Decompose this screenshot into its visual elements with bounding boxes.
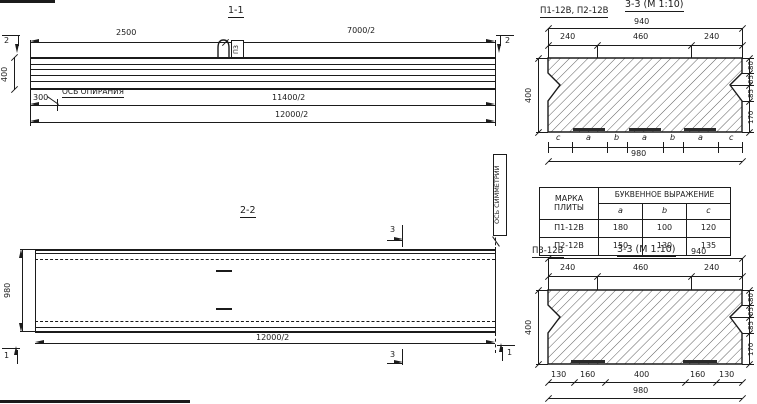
- detail-top-title: 3-3 (М 1:10): [625, 0, 684, 12]
- dim-12000-2: 12000/2: [256, 334, 289, 342]
- letter-a: a: [698, 134, 703, 142]
- dim-65: 65: [748, 306, 755, 317]
- section-1-1-title: 1-1: [228, 6, 244, 18]
- dim-160-right: 160: [690, 371, 705, 379]
- support-axis-label: ОСЬ ОПИРАНИЯ: [62, 88, 124, 98]
- dim-980: 980: [633, 387, 648, 395]
- detail-top-label: П1-12В, П2-12В: [540, 7, 608, 18]
- plan-right-edge: [495, 249, 496, 333]
- dim-240-right: 240: [704, 264, 719, 272]
- dim-line: [548, 45, 742, 46]
- dim-line: [548, 28, 742, 29]
- table-header-mark: МАРКА ПЛИТЫ: [540, 188, 599, 220]
- cell-c: 120: [687, 220, 731, 238]
- dim-940: 940: [634, 18, 649, 26]
- dim-arrow: [30, 102, 39, 106]
- embedded-plate: [629, 128, 661, 131]
- scan-artifact: [0, 0, 55, 3]
- cut-marker-1-right: 1: [507, 349, 512, 357]
- dim-980: 980: [4, 276, 12, 304]
- letter-c: c: [556, 134, 560, 142]
- dim-240-left: 240: [560, 264, 575, 272]
- dim-170: 170: [748, 104, 755, 130]
- cut-marker-arrow: [394, 237, 403, 241]
- section-2-2-title: 2-2: [240, 206, 256, 218]
- embedded-plate: [683, 360, 717, 363]
- cut-marker-2-right: 2: [505, 37, 510, 45]
- dim-85: 85: [748, 87, 755, 100]
- drawing-sheet: 1-1 2500 7000/2 2 2 П3 400 300 ОСЬ ОПИРА…: [0, 0, 757, 404]
- cut-marker-1-left: 1: [4, 352, 9, 360]
- dim-980: 980: [631, 150, 646, 158]
- dim-80: 80: [748, 291, 755, 304]
- dim-tick: [683, 142, 684, 153]
- leader-line: [492, 236, 500, 246]
- dim-arrow: [19, 249, 23, 258]
- dim-tick: [11, 86, 18, 93]
- dim-11400-2: 11400/2: [272, 94, 305, 102]
- dim-line: [30, 42, 495, 43]
- dim-line: [548, 382, 742, 383]
- symmetry-centerline: [495, 333, 496, 353]
- dim-arrow: [486, 119, 495, 123]
- slab-cross-section-top: [545, 55, 747, 137]
- cut-marker-arrow: [14, 346, 18, 355]
- cell-b: 100: [643, 220, 687, 238]
- table-header-expression: БУКВЕННОЕ ВЫРАЖЕНИЕ: [599, 188, 731, 204]
- symmetry-axis-label: ОСЬ СИММЕТРИИ: [493, 154, 507, 236]
- plan-mark: [216, 308, 232, 310]
- dim-line: [30, 122, 495, 123]
- dim-line: [548, 398, 742, 399]
- cut-marker-3-bottom: 3: [390, 351, 395, 359]
- dim-240-left: 240: [560, 33, 575, 41]
- dim-240-right: 240: [704, 33, 719, 41]
- dim-line: [548, 276, 742, 277]
- dim-tick: [739, 395, 746, 402]
- dim-line: [30, 105, 495, 106]
- embedded-plate: [571, 360, 605, 363]
- beam-top-edge: [30, 57, 495, 59]
- slab-cross-section-bottom: [545, 287, 747, 369]
- beam-end-edge: [30, 40, 31, 126]
- dim-tick: [627, 142, 628, 153]
- dim-400-bottom: 400: [634, 371, 649, 379]
- extension-line: [548, 28, 549, 58]
- loop-mark-label: П3: [233, 42, 240, 56]
- cut-marker-arrow: [497, 44, 501, 53]
- dim-arrow: [486, 340, 495, 344]
- extension-line: [742, 28, 743, 58]
- plan-left-edge: [35, 249, 36, 333]
- cut-marker-line: [402, 225, 403, 247]
- dim-tick: [572, 142, 573, 153]
- beam-line: [30, 81, 495, 82]
- dim-line: [538, 290, 539, 364]
- dim-300: 300: [33, 94, 48, 102]
- dim-400: 400: [1, 61, 9, 87]
- embedded-plate: [684, 128, 716, 131]
- dim-65: 65: [748, 74, 755, 85]
- cell-mark: П1-12В: [540, 220, 599, 238]
- table-col-b: b: [643, 204, 687, 220]
- dim-line: [22, 249, 23, 331]
- dim-tick: [663, 142, 664, 153]
- dim-160-left: 160: [580, 371, 595, 379]
- dim-line: [548, 161, 742, 162]
- dim-arrow: [486, 39, 495, 43]
- dim-arrow: [486, 102, 495, 106]
- extension-line: [548, 258, 549, 290]
- dim-tick: [739, 379, 746, 386]
- letter-a: a: [586, 134, 591, 142]
- dim-tick: [607, 142, 608, 153]
- dim-line: [35, 343, 495, 344]
- dim-arrow: [30, 39, 39, 43]
- cut-marker-arrow: [499, 343, 503, 352]
- dim-line: [14, 57, 15, 90]
- dim-arrow: [19, 323, 23, 332]
- cut-marker-2-left: 2: [4, 37, 9, 45]
- cut-marker-arrow: [394, 360, 403, 364]
- beam-line: [30, 75, 495, 76]
- symmetry-extension-line: [495, 40, 496, 126]
- dim-940: 940: [691, 248, 706, 256]
- dim-400: 400: [525, 81, 533, 109]
- dim-85: 85: [748, 319, 755, 332]
- scan-artifact: [0, 400, 190, 403]
- plan-line: [35, 253, 495, 254]
- dim-arrow: [30, 119, 39, 123]
- dim-line: [548, 147, 742, 148]
- beam-line: [30, 69, 495, 70]
- dim-12000-2: 12000/2: [275, 111, 308, 119]
- table-col-a: a: [599, 204, 643, 220]
- dim-7000-2: 7000/2: [347, 27, 375, 35]
- dim-80: 80: [748, 59, 755, 72]
- dim-170: 170: [748, 336, 755, 362]
- dim-line: [548, 258, 742, 259]
- plan-line: [35, 327, 495, 328]
- dim-arrow: [35, 340, 44, 344]
- dim-tick: [739, 158, 746, 165]
- table-col-c: c: [687, 204, 731, 220]
- beam-line: [30, 64, 495, 65]
- plan-mark: [216, 270, 232, 272]
- letter-c: c: [729, 134, 733, 142]
- plan-hidden-line: [35, 321, 495, 322]
- embedded-plate: [573, 128, 605, 131]
- letter-b: b: [614, 134, 619, 142]
- cell-a: 180: [599, 220, 643, 238]
- cut-marker-3-top: 3: [390, 226, 395, 234]
- dim-460: 460: [633, 33, 648, 41]
- letter-a: a: [642, 134, 647, 142]
- dim-130-left: 130: [551, 371, 566, 379]
- detail-bottom-label: П3-12В: [532, 247, 564, 258]
- dim-2500: 2500: [116, 29, 136, 37]
- dim-130-right: 130: [719, 371, 734, 379]
- dim-tick: [718, 142, 719, 153]
- dim-400: 400: [525, 313, 533, 341]
- dim-tick: [548, 142, 549, 153]
- dim-tick: [742, 142, 743, 153]
- plan-top-edge: [35, 249, 495, 251]
- loop-mark-flag: П3: [231, 40, 244, 58]
- dim-460: 460: [633, 264, 648, 272]
- detail-bottom-title: 3-3 (М 1:10): [617, 245, 676, 257]
- plan-hidden-line: [35, 259, 495, 260]
- extension-line: [742, 258, 743, 290]
- dim-line: [538, 58, 539, 132]
- letter-b: b: [670, 134, 675, 142]
- table-row: П1-12В 180 100 120: [540, 220, 731, 238]
- cut-marker-arrow: [15, 44, 19, 53]
